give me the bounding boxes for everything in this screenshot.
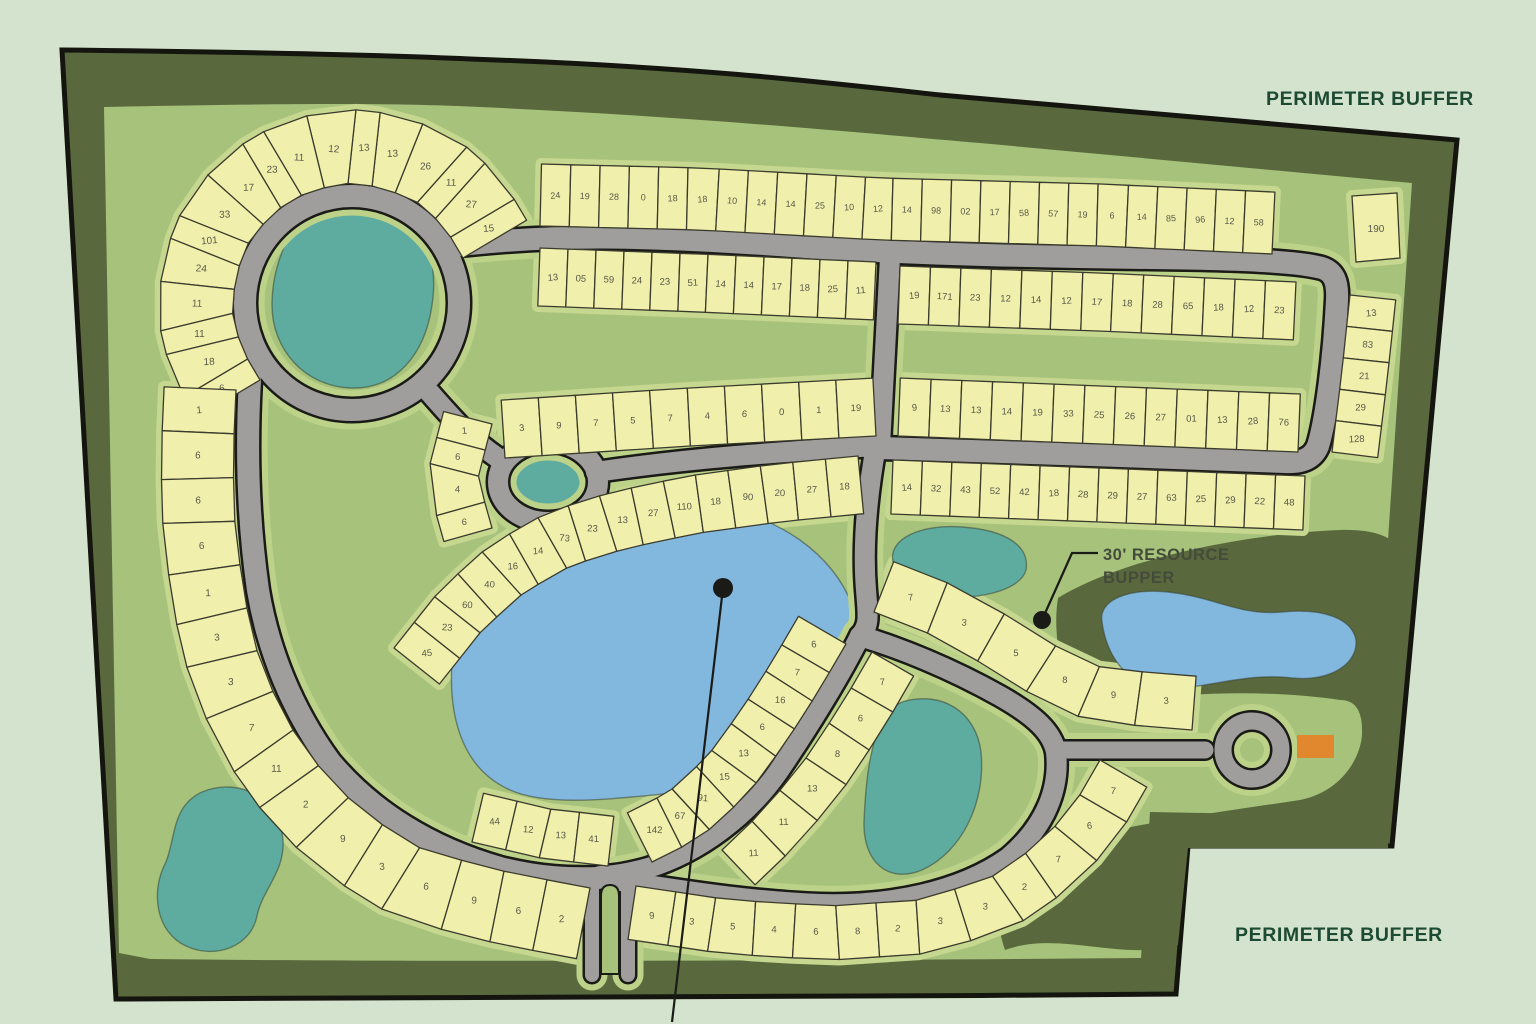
lot-number: 48 xyxy=(1284,497,1295,508)
lot-number: 6 xyxy=(857,713,863,724)
lot-number: 17 xyxy=(243,183,255,194)
resource-buffer-label-line1: 30' RESOURCE xyxy=(1103,546,1229,564)
lot-number: 9 xyxy=(911,402,917,413)
lot-number: 13 xyxy=(547,272,558,284)
lot-number: 190 xyxy=(1368,224,1385,235)
lot-number: 27 xyxy=(1137,492,1148,503)
lot-number: 11 xyxy=(446,178,457,189)
lot-number: 33 xyxy=(1063,408,1074,420)
lot-number: 11 xyxy=(778,817,788,828)
lot-number: 90 xyxy=(742,492,753,504)
lot-number: 25 xyxy=(815,201,825,211)
lot-number: 10 xyxy=(727,195,738,206)
lot-number: 28 xyxy=(1152,300,1163,311)
lot-number: 18 xyxy=(1048,488,1059,500)
lot-number: 27 xyxy=(648,508,659,519)
lot-number: 3 xyxy=(1163,696,1169,707)
lot-number: 6 xyxy=(516,906,522,917)
lot-number: 6 xyxy=(741,409,747,420)
road-road-south-spine xyxy=(860,446,876,636)
lot-number: 58 xyxy=(1019,208,1030,219)
lot-number: 2 xyxy=(1022,882,1027,893)
lot-number: 6 xyxy=(1110,211,1115,221)
lot-number: 02 xyxy=(960,206,970,216)
lot-number: 23 xyxy=(442,622,453,634)
lot-number: 98 xyxy=(931,205,941,215)
lot-number: 6 xyxy=(199,541,205,552)
lot-number: 28 xyxy=(1077,489,1088,501)
lot-number: 6 xyxy=(811,639,817,650)
lot-number: 18 xyxy=(799,283,810,294)
lot-number: 11 xyxy=(748,848,759,860)
lot-number: 73 xyxy=(559,533,570,545)
lot-number: 7 xyxy=(593,418,599,429)
lot-number: 10 xyxy=(844,202,855,213)
lot-number: 4 xyxy=(455,484,461,495)
lot-number: 3 xyxy=(519,423,525,434)
subdivision-site-plan-map: 1527112613131211231733101241111186166613… xyxy=(0,0,1536,1024)
lot-number: 9 xyxy=(471,896,477,907)
lot-number: 19 xyxy=(579,191,590,202)
lot-number: 14 xyxy=(901,204,912,215)
road-road-connector xyxy=(880,257,890,446)
lot-number: 2 xyxy=(559,914,565,925)
lot-number: 60 xyxy=(462,600,473,611)
lot-number: 15 xyxy=(719,771,730,783)
lot-number: 9 xyxy=(340,834,347,845)
lot-number: 19 xyxy=(1077,209,1088,220)
lot-number: 6 xyxy=(455,452,461,463)
lot-number: 110 xyxy=(676,501,692,513)
lot-number: 6 xyxy=(813,927,819,938)
lot-number: 18 xyxy=(667,193,677,203)
lot-number: 8 xyxy=(1062,675,1067,686)
lot-number: 28 xyxy=(1247,416,1258,428)
lot-number: 13 xyxy=(971,405,982,416)
lot-number: 14 xyxy=(786,199,796,209)
lot-number: 7 xyxy=(1055,854,1061,865)
lot-number: 7 xyxy=(1110,786,1116,797)
lot-number: 65 xyxy=(1183,301,1194,312)
lot-number: 0 xyxy=(779,407,785,418)
lot-number: 12 xyxy=(1061,295,1072,307)
lot-number: 27 xyxy=(465,199,477,211)
lot-number: 12 xyxy=(328,144,340,156)
lot-number: 128 xyxy=(1349,434,1365,446)
lot-number: 142 xyxy=(646,825,662,836)
lot-number: 13 xyxy=(940,404,951,416)
lot-number: 14 xyxy=(901,482,912,494)
lot-number: 13 xyxy=(358,142,370,154)
lot-number: 42 xyxy=(1019,487,1030,498)
lot-number: 18 xyxy=(697,194,708,205)
lot-number: 13 xyxy=(387,149,399,160)
lot-number: 11 xyxy=(271,764,282,775)
lot-number: 18 xyxy=(1122,298,1133,310)
lot-number: 23 xyxy=(266,165,278,176)
lot-number: 29 xyxy=(1355,403,1366,414)
lot-number: 27 xyxy=(807,485,818,496)
lot-number: 8 xyxy=(855,926,861,937)
lot-number: 15 xyxy=(483,223,495,235)
lot-number: 9 xyxy=(1111,690,1117,701)
lot-number: 43 xyxy=(960,485,971,496)
lot-number: 6 xyxy=(195,495,201,506)
lot-number: 1 xyxy=(816,405,821,416)
lot-number: 18 xyxy=(203,357,215,368)
lot-number: 51 xyxy=(687,277,698,289)
lot-number: 3 xyxy=(983,902,988,913)
lot-number: 14 xyxy=(1137,212,1147,222)
lot-number: 14 xyxy=(715,279,726,291)
lot-number: 29 xyxy=(1107,490,1118,502)
lot-number: 12 xyxy=(1243,303,1254,315)
lot-number: 8 xyxy=(835,749,841,760)
lot-number: 0 xyxy=(641,193,646,203)
lot-number: 23 xyxy=(970,292,981,303)
lot-number: 26 xyxy=(420,162,432,173)
lot-number: 14 xyxy=(532,546,543,558)
lot-number: 32 xyxy=(930,483,941,495)
lot-number: 25 xyxy=(827,284,838,296)
lot-number: 13 xyxy=(555,830,566,841)
lot-number: 7 xyxy=(908,592,914,603)
lot-number: 9 xyxy=(649,910,655,921)
lot-number: 76 xyxy=(1278,417,1289,429)
lot-number: 16 xyxy=(507,561,518,572)
lot-number: 3 xyxy=(961,618,967,629)
lot-number: 3 xyxy=(937,916,943,927)
lot-number: 25 xyxy=(1093,409,1104,421)
lot-number: 5 xyxy=(630,416,635,427)
lot-number: 11 xyxy=(194,329,205,340)
site-plan-page: 1527112613131211231733101241111186166613… xyxy=(0,0,1536,1024)
lot-number: 23 xyxy=(1274,305,1285,317)
lot-number: 16 xyxy=(775,695,786,706)
lot-number: 4 xyxy=(704,411,710,422)
lot-number: 17 xyxy=(990,207,1000,217)
lot-number: 11 xyxy=(855,285,866,297)
lot-number: 24 xyxy=(632,276,643,287)
lot-number: 52 xyxy=(990,486,1001,497)
lot-number: 41 xyxy=(588,834,599,845)
orange-site-marker xyxy=(1297,735,1334,758)
lot-number: 7 xyxy=(879,677,885,688)
lot-number: 96 xyxy=(1195,214,1206,225)
lot-number: 18 xyxy=(710,496,721,508)
lot-number: 6 xyxy=(760,722,765,733)
lot-number: 25 xyxy=(1195,494,1206,506)
lot-number: 11 xyxy=(294,152,305,164)
lot-number: 14 xyxy=(756,197,767,208)
lot-number: 6 xyxy=(462,517,467,528)
lot-number: 7 xyxy=(794,667,800,678)
lot-number: 24 xyxy=(195,263,207,275)
lot-number: 3 xyxy=(689,916,695,927)
lot-number: 58 xyxy=(1254,217,1264,227)
lot-number: 29 xyxy=(1225,495,1236,507)
entrance-median xyxy=(601,885,619,974)
lot-number: 6 xyxy=(1086,821,1092,832)
lot-number: 63 xyxy=(1166,493,1177,504)
lot-number: 05 xyxy=(575,273,586,285)
lot-number: 57 xyxy=(1048,208,1059,219)
lot-number: 59 xyxy=(603,274,614,285)
lot-number: 13 xyxy=(1365,308,1376,320)
lot-number: 101 xyxy=(201,235,219,247)
lot-number: 2 xyxy=(895,923,901,934)
lot-number: 13 xyxy=(807,783,818,794)
lot-number: 12 xyxy=(1224,216,1235,227)
lot-number: 2 xyxy=(303,800,309,811)
lot-number: 67 xyxy=(674,811,685,823)
lot-number: 1 xyxy=(461,426,467,437)
lot-number: 23 xyxy=(587,523,598,535)
lot-number: 19 xyxy=(851,403,862,414)
lot-number: 5 xyxy=(730,921,736,932)
lot-number: 18 xyxy=(839,481,850,492)
lot-number: 7 xyxy=(249,723,256,734)
lot-number: 19 xyxy=(908,290,919,302)
dot-resource xyxy=(1033,611,1051,629)
lot-number: 44 xyxy=(489,816,500,828)
lot-number: 01 xyxy=(1186,414,1197,425)
lot-number: 14 xyxy=(1031,295,1042,306)
lot-number: 28 xyxy=(609,192,619,202)
lot-number: 40 xyxy=(484,579,495,590)
lot-number: 171 xyxy=(936,291,953,303)
lot-number: 1 xyxy=(205,588,211,599)
lot-number: 17 xyxy=(771,281,782,292)
lot-number: 33 xyxy=(219,209,231,221)
lot-number: 14 xyxy=(1002,406,1013,417)
lot-number: 17 xyxy=(1091,297,1102,309)
lot-number: 13 xyxy=(617,515,628,526)
lot-number: 13 xyxy=(1217,415,1228,427)
lot-number: 26 xyxy=(1124,411,1135,423)
lot-number: 85 xyxy=(1166,213,1177,224)
lot-number: 12 xyxy=(523,824,534,836)
perimeter-buffer-label-bottom: PERIMETER BUFFER xyxy=(1235,924,1443,946)
lot-number: 18 xyxy=(1213,302,1224,314)
lot-number: 14 xyxy=(743,280,754,292)
lot-number: 11 xyxy=(192,299,203,310)
lot-number: 27 xyxy=(1155,412,1166,423)
lot-number: 9 xyxy=(556,420,562,431)
resource-buffer-label-line2: BUPPER xyxy=(1103,569,1175,587)
lot-number: 22 xyxy=(1254,496,1265,508)
perimeter-buffer-label-top: PERIMETER BUFFER xyxy=(1266,88,1474,110)
lot-number: 21 xyxy=(1359,371,1370,382)
lot-number: 19 xyxy=(1032,407,1043,418)
lot-number: 12 xyxy=(1000,294,1011,305)
lot-number: 13 xyxy=(738,748,749,759)
lot-number: 23 xyxy=(659,277,670,288)
lot-number: 7 xyxy=(667,413,673,424)
lot-number: 45 xyxy=(421,648,432,660)
lot-number: 12 xyxy=(873,203,884,214)
dot-big-pond xyxy=(713,578,733,598)
lot-number: 83 xyxy=(1362,339,1373,351)
lot-number: 20 xyxy=(774,488,785,499)
lot-number: 24 xyxy=(550,190,561,201)
lot-number: 4 xyxy=(771,925,776,936)
lot-number: 5 xyxy=(1013,648,1019,659)
